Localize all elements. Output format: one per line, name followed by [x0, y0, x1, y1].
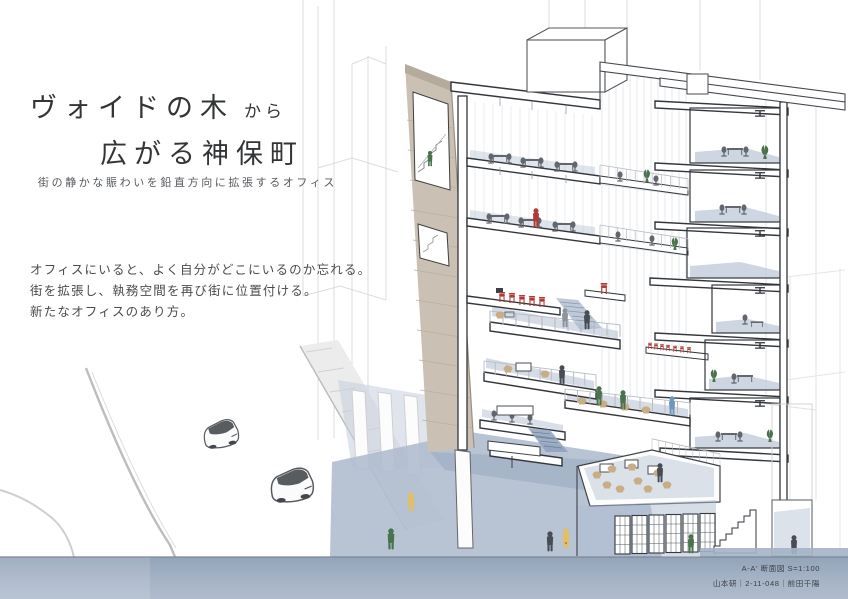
title-line-1: ヴォイドの木 — [30, 93, 234, 123]
subtitle: 街の静かな賑わいを鉛直方向に拡張するオフィス — [38, 174, 337, 190]
poster-title: ヴォイドの木から — [30, 86, 286, 125]
title-connector: から — [244, 102, 286, 121]
car — [270, 467, 315, 503]
statement-line: オフィスにいると、よく自分がどこにいるのか忘れる。 — [30, 260, 371, 281]
concept-statement: オフィスにいると、よく自分がどこにいるのか忘れる。 街を拡張し、執務空間を再び街… — [30, 260, 371, 323]
statement-line: 街を拡張し、執務空間を再び街に位置付ける。 — [30, 281, 371, 302]
car — [202, 418, 240, 450]
drawing-scale-label: A-A' 断面図 S=1:100 — [713, 561, 820, 576]
title-line-2: 広がる神保町 — [100, 139, 304, 169]
statement-line: 新たなオフィスのあり方。 — [30, 302, 371, 323]
piloti-column — [455, 450, 473, 548]
right-neighbor — [772, 404, 812, 556]
drawing-caption: A-A' 断面図 S=1:100 山本研｜2-11-048｜前田千陽 — [713, 561, 820, 591]
building-section — [405, 28, 845, 556]
credit-label: 山本研｜2-11-048｜前田千陽 — [713, 576, 820, 591]
title-line-2-wrap: 広がる神保町 — [100, 132, 304, 171]
lower-stair — [714, 510, 756, 553]
